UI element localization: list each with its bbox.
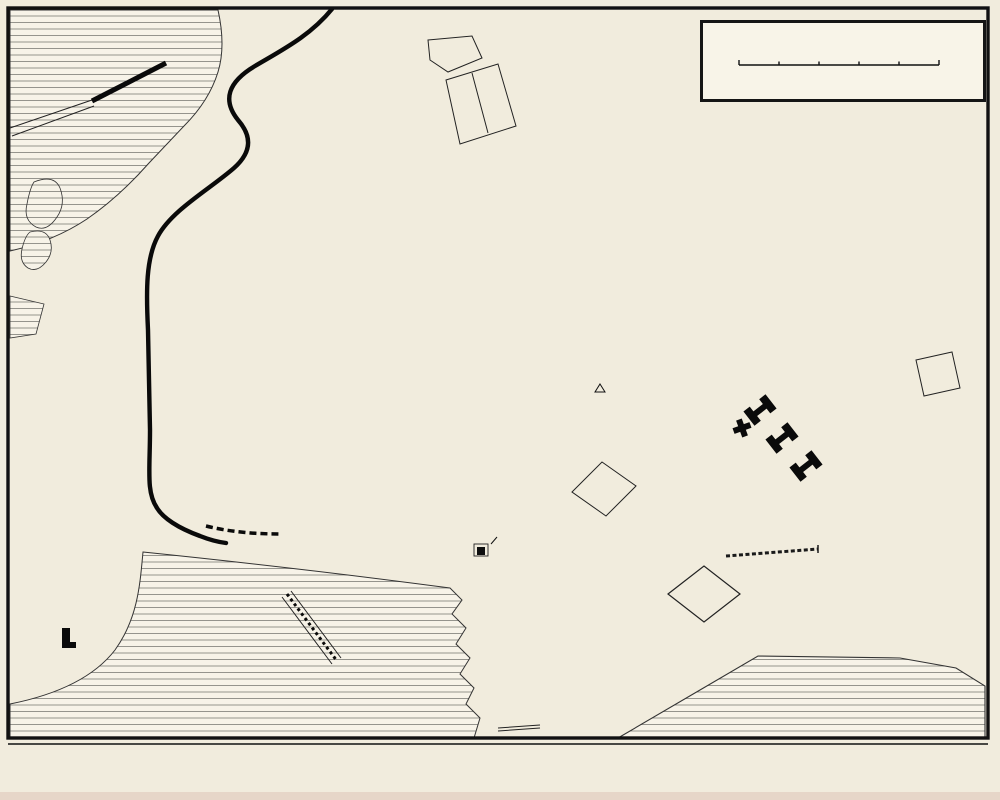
quay-wall xyxy=(206,526,280,534)
map-sheet xyxy=(0,0,1000,800)
scale-bar xyxy=(723,47,963,75)
europaeer-friedhof-outline xyxy=(916,352,960,396)
tempel-building xyxy=(474,537,497,556)
artillerie-lager-outline xyxy=(668,566,740,622)
scan-edge xyxy=(0,792,1000,800)
map-canvas xyxy=(0,0,1000,745)
auguste-victoria-bucht-water xyxy=(618,656,985,738)
aussen-rhede-water xyxy=(10,552,480,738)
mission-field xyxy=(446,64,516,144)
water-layer xyxy=(10,10,985,738)
title-box xyxy=(700,20,986,102)
schiess-stand-range xyxy=(726,549,818,556)
bismarck-kasernen-buildings xyxy=(730,394,822,481)
bootsslip-ramp xyxy=(498,725,540,731)
page: { "page": {"paper_color": "#f7f3e8", "in… xyxy=(0,0,1000,800)
feldartill-lshape xyxy=(62,628,76,648)
marsh xyxy=(10,296,44,338)
diederichs-berg-summit xyxy=(595,384,605,392)
map-frame xyxy=(0,0,1000,745)
faber-hospital-grounds xyxy=(428,36,482,72)
baracken-upper-camp xyxy=(572,462,636,516)
